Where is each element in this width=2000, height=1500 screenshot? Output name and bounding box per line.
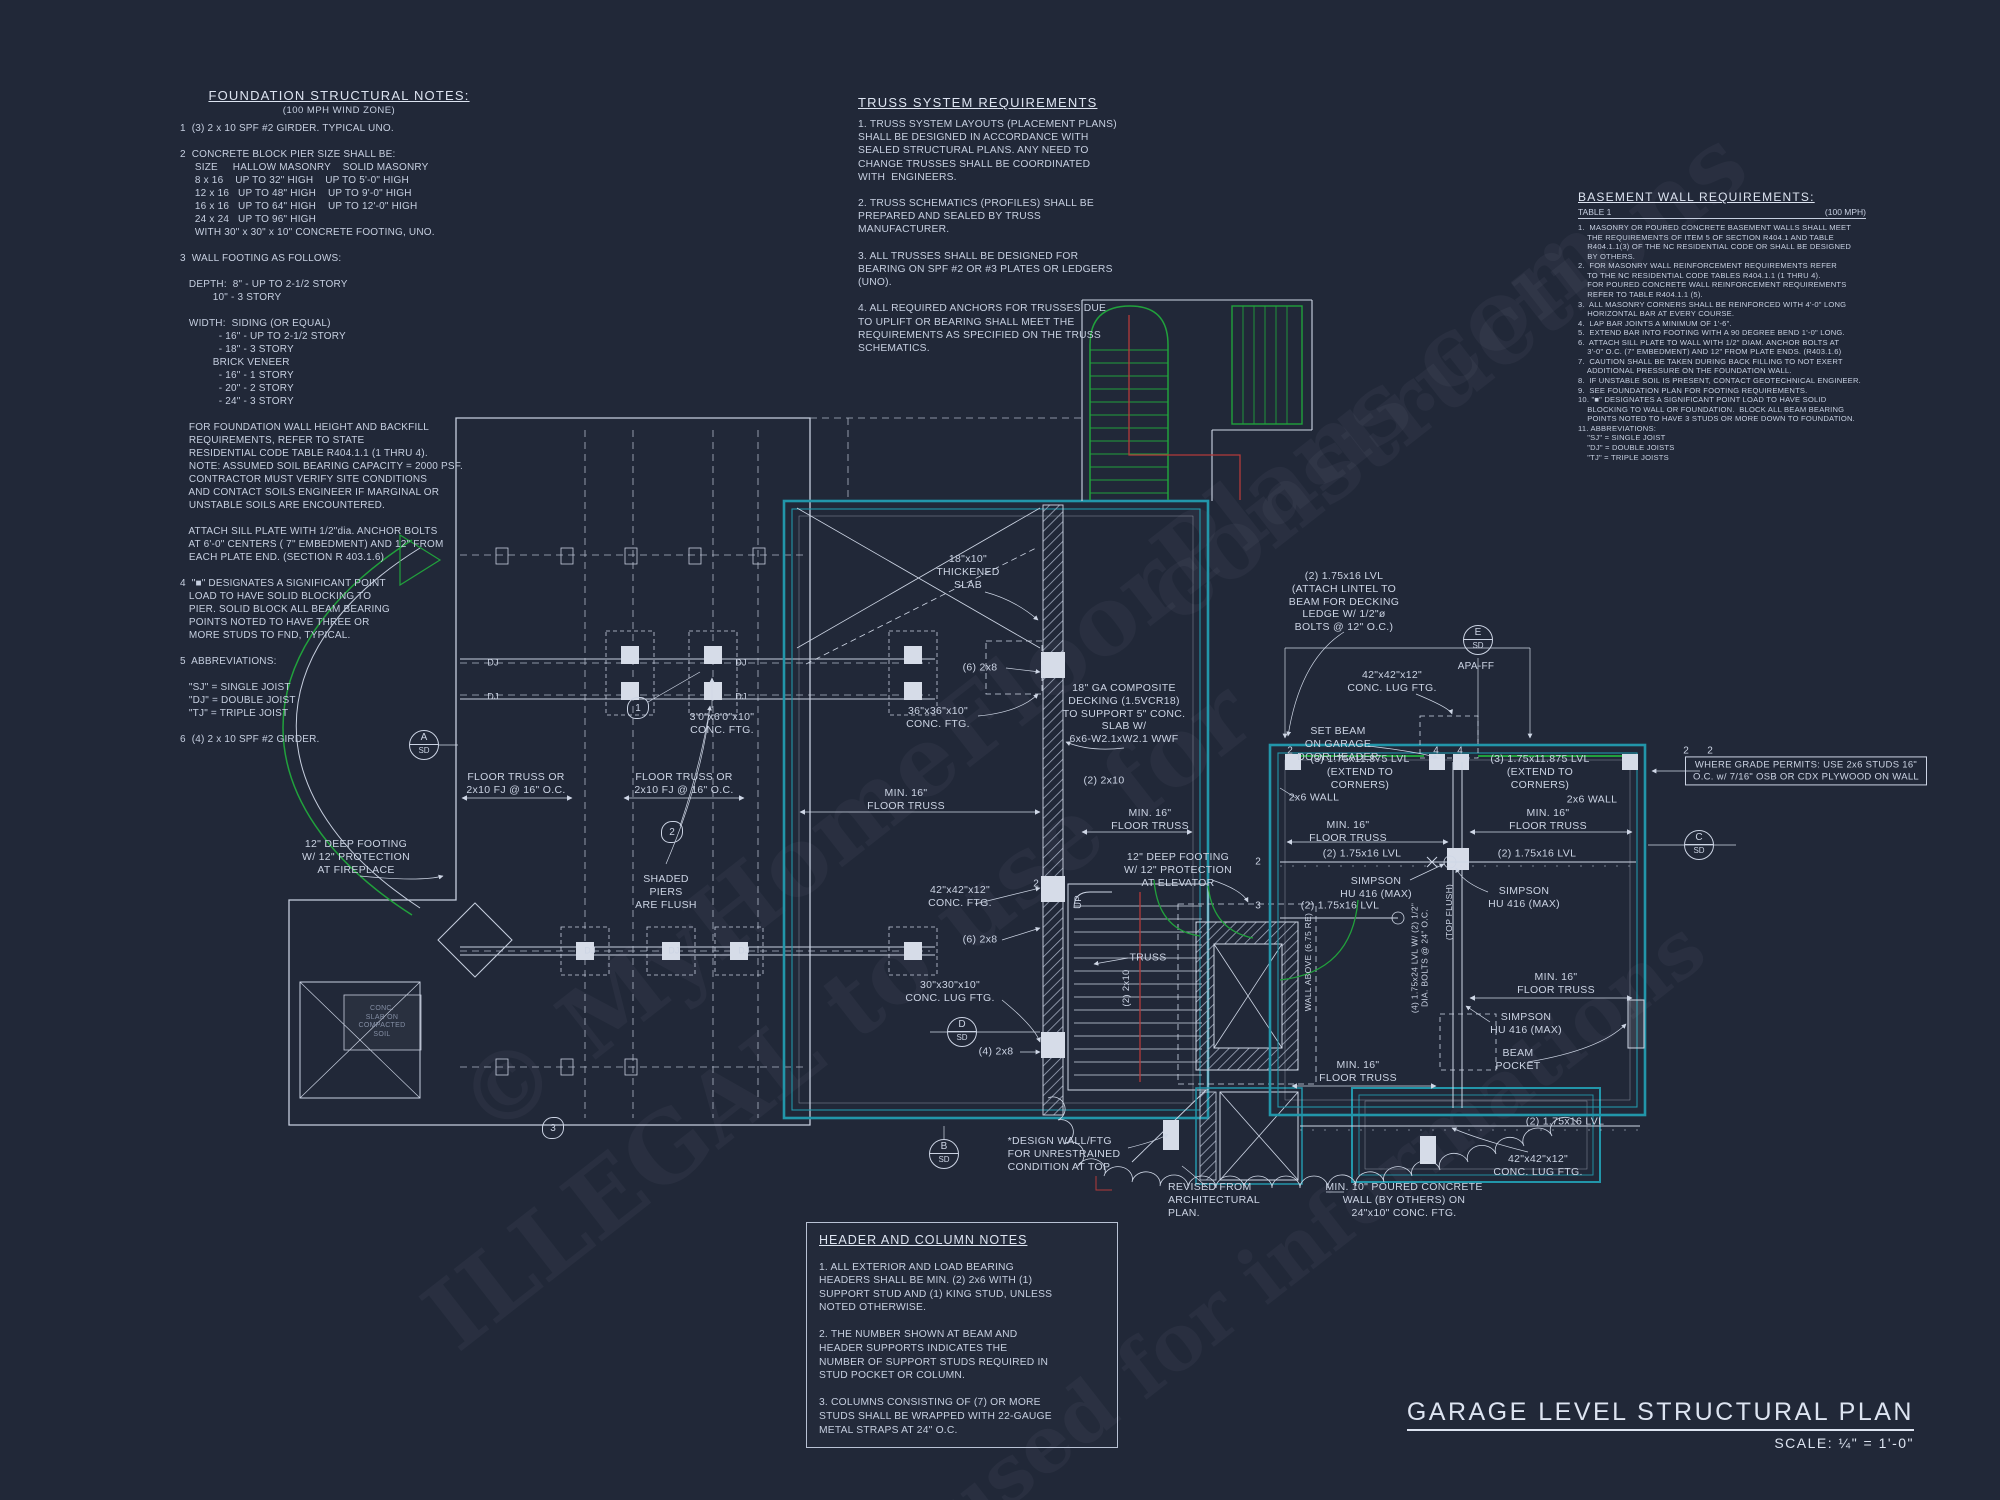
note-line: - 16" - UP TO 2-1/2 STORY bbox=[180, 330, 498, 343]
plan-label: (4) 1.75x24 LVL W/ (2) 1/2"DIA. BOLTS @ … bbox=[1410, 903, 1431, 1013]
plan-label: (3) 1.75x11.875 LVL(EXTEND TOCORNERS) bbox=[1490, 753, 1589, 791]
plan-label: 2x6 WALL bbox=[1567, 794, 1617, 807]
plan-label: FLOOR TRUSS OR2x10 FJ @ 16" O.C. bbox=[466, 771, 565, 797]
keynote-hex-marker: 2 bbox=[661, 821, 683, 843]
note-line: "TJ" = TRIPLE JOIST bbox=[180, 707, 498, 720]
note-line: UNSTABLE SOILS ARE ENCOUNTERED. bbox=[180, 499, 498, 512]
note-line: 24 x 24 UP TO 96" HIGH bbox=[180, 213, 498, 226]
note-line: PIER. SOLID BLOCK ALL BEAM BEARING bbox=[180, 603, 498, 616]
section-marker-b: BSD bbox=[929, 1139, 959, 1169]
note-line: HORIZONTAL BAR AT EVERY COURSE. bbox=[1578, 309, 1866, 319]
plan-label: CONC.SLAB ONCOMPACTEDSOIL bbox=[359, 1005, 406, 1039]
note-line: 10" - 3 STORY bbox=[180, 291, 498, 304]
note-line: FOR FOUNDATION WALL HEIGHT AND BACKFILL bbox=[180, 421, 498, 434]
note-line: MANUFACTURER. bbox=[858, 223, 1158, 236]
note-line: 2 CONCRETE BLOCK PIER SIZE SHALL BE: bbox=[180, 148, 498, 161]
notes-heading: HEADER AND COLUMN NOTES bbox=[819, 1233, 1105, 1247]
note-line bbox=[180, 408, 498, 421]
note-line: ATTACH SILL PLATE WITH 1/2"dia. ANCHOR B… bbox=[180, 525, 498, 538]
plan-label: (2) 1.75x16 LVL bbox=[1301, 900, 1379, 913]
plan-label: 18"x10"THICKENEDSLAB bbox=[936, 553, 999, 591]
plan-label: 42"x42"x12"CONC. LUG FTG. bbox=[1347, 669, 1436, 695]
wind-speed: (100 MPH) bbox=[1825, 207, 1866, 217]
note-line: R404.1.1(3) OF THE NC RESIDENTIAL CODE O… bbox=[1578, 242, 1866, 252]
note-line: HEADERS SHALL BE MIN. (2) 2x6 WITH (1) bbox=[819, 1274, 1105, 1288]
plan-label: WALL ABOVE (6.75 RE) bbox=[1303, 913, 1313, 1011]
plan-label: (2) 2x10 bbox=[1121, 969, 1133, 1006]
note-line: - 20" - 2 STORY bbox=[180, 382, 498, 395]
note-line: 7. CAUTION SHALL BE TAKEN DURING BACK FI… bbox=[1578, 357, 1866, 367]
plan-label: (TOP FLUSH) bbox=[1444, 884, 1454, 940]
note-line: MORE STUDS TO FND, TYPICAL. bbox=[180, 629, 498, 642]
plan-label: MIN. 16"FLOOR TRUSS bbox=[1319, 1059, 1397, 1085]
note-line: DEPTH: 8" - UP TO 2-1/2 STORY bbox=[180, 278, 498, 291]
plan-label: SIMPSONHU 416 (MAX) bbox=[1490, 1011, 1562, 1037]
note-line: 5. EXTEND BAR INTO FOOTING WITH A 90 DEG… bbox=[1578, 328, 1866, 338]
note-line: POINTS NOTED TO HAVE 3 STUDS OR MORE DOW… bbox=[1578, 414, 1866, 424]
plan-label: DJ bbox=[735, 658, 747, 669]
table-label: TABLE 1 bbox=[1578, 207, 1611, 217]
stud-count-number: 2 bbox=[1255, 857, 1261, 868]
stud-count-number: 2 bbox=[1683, 746, 1689, 757]
note-line: "TJ" = TRIPLE JOISTS bbox=[1578, 453, 1866, 463]
plan-label: DJ bbox=[668, 946, 680, 957]
plan-label: 42"x42"x12"CONC. LUG FTG. bbox=[1493, 1153, 1582, 1179]
note-line: 1 (3) 2 x 10 SPF #2 GIRDER. TYPICAL UNO. bbox=[180, 122, 498, 135]
note-line: HEADER SUPPORTS INDICATES THE bbox=[819, 1342, 1105, 1356]
note-line: 6 (4) 2 x 10 SPF #2 GIRDER. bbox=[180, 733, 498, 746]
plan-label: REVISED FROMARCHITECTURALPLAN. bbox=[1168, 1181, 1260, 1219]
note-line: THE REQUIREMENTS OF ITEM 5 OF SECTION R4… bbox=[1578, 233, 1866, 243]
plan-label: DJ bbox=[487, 658, 499, 669]
note-line: 1. MASONRY OR POURED CONCRETE BASEMENT W… bbox=[1578, 223, 1866, 233]
plan-label: SIMPSONHU 416 (MAX) bbox=[1340, 875, 1412, 901]
notes-body: 1. TRUSS SYSTEM LAYOUTS (PLACEMENT PLANS… bbox=[858, 118, 1158, 355]
plan-label: 3'0"x6'0"x10"CONC. FTG. bbox=[690, 711, 755, 737]
plan-label: MIN. 16"FLOOR TRUSS bbox=[867, 787, 945, 813]
plan-label: DJ bbox=[584, 946, 596, 957]
plan-label: (6) 2x8 bbox=[963, 934, 998, 947]
elevator-shaft bbox=[1154, 880, 1316, 1084]
plan-label: (2) 1.75x16 LVL(ATTACH LINTEL TOBEAM FOR… bbox=[1289, 570, 1399, 634]
plan-label: DJ bbox=[738, 946, 750, 957]
stud-count-number: 3 bbox=[1255, 901, 1261, 912]
note-line: "SJ" = SINGLE JOIST bbox=[180, 681, 498, 694]
note-line bbox=[858, 237, 1158, 250]
plan-label: MIN. 16"FLOOR TRUSS bbox=[1509, 807, 1587, 833]
note-line: 3 WALL FOOTING AS FOLLOWS: bbox=[180, 252, 498, 265]
note-line: WITH 30" x 30" x 10" CONCRETE FOOTING, U… bbox=[180, 226, 498, 239]
plan-label: MIN. 16"FLOOR TRUSS bbox=[1111, 807, 1189, 833]
note-line bbox=[180, 265, 498, 278]
note-line: 2. TRUSS SCHEMATICS (PROFILES) SHALL BE bbox=[858, 197, 1158, 210]
notes-subheading: (100 MPH WIND ZONE) bbox=[180, 105, 498, 116]
stud-count-number: 2 bbox=[1707, 746, 1713, 757]
note-line: SUPPORT STUD AND (1) KING STUD, UNLESS bbox=[819, 1288, 1105, 1302]
note-line: BLOCKING TO WALL OR FOUNDATION. BLOCK AL… bbox=[1578, 405, 1866, 415]
note-line: 10. "■" DESIGNATES A SIGNIFICANT POINT L… bbox=[1578, 395, 1866, 405]
note-line bbox=[180, 135, 498, 148]
note-line: NOTE: ASSUMED SOIL BEARING CAPACITY = 20… bbox=[180, 460, 498, 473]
note-line bbox=[819, 1247, 1105, 1261]
note-line bbox=[819, 1315, 1105, 1329]
note-line: LOAD TO HAVE SOLID BLOCKING TO bbox=[180, 590, 498, 603]
title-block: GARAGE LEVEL STRUCTURAL PLAN SCALE: ¼" =… bbox=[1407, 1398, 1914, 1451]
note-line: EACH PLATE END. (SECTION R 403.1.6) bbox=[180, 551, 498, 564]
note-line: SEALED STRUCTURAL PLANS. ANY NEED TO bbox=[858, 144, 1158, 157]
note-line: 6. ATTACH SILL PLATE TO WALL WITH 1/2" D… bbox=[1578, 338, 1866, 348]
note-line: 1. TRUSS SYSTEM LAYOUTS (PLACEMENT PLANS… bbox=[858, 118, 1158, 131]
section-marker-a: ASD bbox=[409, 730, 439, 760]
plan-label: (2) 1.75x16 LVL bbox=[1498, 848, 1576, 861]
note-line bbox=[180, 642, 498, 655]
note-line: 3. ALL MASONRY CORNERS SHALL BE REINFORC… bbox=[1578, 300, 1866, 310]
note-line bbox=[180, 239, 498, 252]
note-line: 16 x 16 UP TO 64" HIGH UP TO 12'-0" HIGH bbox=[180, 200, 498, 213]
blueprint-canvas: © MyHomeFloorPlans.comILLEGAL to use for… bbox=[0, 0, 2000, 1500]
note-line: (UNO). bbox=[858, 276, 1158, 289]
note-line bbox=[180, 512, 498, 525]
plan-label: DJ bbox=[487, 692, 499, 703]
note-line: CHANGE TRUSSES SHALL BE COORDINATED bbox=[858, 158, 1158, 171]
plan-label: 18" GA COMPOSITEDECKING (1.5VCR18)TO SUP… bbox=[1063, 682, 1186, 746]
note-line: "DJ" = DOUBLE JOIST bbox=[180, 694, 498, 707]
note-line: PREPARED AND SEALED BY TRUSS bbox=[858, 210, 1158, 223]
note-line: CONTRACTOR MUST VERIFY SITE CONDITIONS bbox=[180, 473, 498, 486]
plan-label: SHADEDPIERSARE FLUSH bbox=[635, 873, 697, 911]
note-line: POINTS NOTED TO HAVE THREE OR bbox=[180, 616, 498, 629]
page-title: GARAGE LEVEL STRUCTURAL PLAN bbox=[1407, 1398, 1914, 1431]
right-garage bbox=[1270, 648, 1645, 1130]
note-line: - 24" - 3 STORY bbox=[180, 395, 498, 408]
note-line: TO THE NC RESIDENTIAL CODE TABLES R404.1… bbox=[1578, 271, 1866, 281]
plan-label: (2) 1.75x16 LVL bbox=[1323, 848, 1401, 861]
note-line: 4 "■" DESIGNATES A SIGNIFICANT POINT bbox=[180, 577, 498, 590]
note-line bbox=[858, 184, 1158, 197]
note-line bbox=[180, 668, 498, 681]
note-line: - 18" - 3 STORY bbox=[180, 343, 498, 356]
note-line: REQUIREMENTS, REFER TO STATE bbox=[180, 434, 498, 447]
section-marker-c: CSD bbox=[1684, 830, 1714, 860]
note-line: 1. ALL EXTERIOR AND LOAD BEARING bbox=[819, 1261, 1105, 1275]
note-line: REQUIREMENTS AS SPECIFIED ON THE TRUSS bbox=[858, 329, 1158, 342]
foundation-structural-notes: FOUNDATION STRUCTURAL NOTES: (100 MPH WI… bbox=[180, 88, 498, 746]
drawing-scale: SCALE: ¼" = 1'-0" bbox=[1407, 1435, 1914, 1451]
note-line: 4. LAP BAR JOINTS A MINIMUM OF 1'-6". bbox=[1578, 319, 1866, 329]
plan-label: WHERE GRADE PERMITS: USE 2x6 STUDS 16"O.… bbox=[1685, 756, 1927, 785]
note-line: 12 x 16 UP TO 48" HIGH UP TO 9'-0" HIGH bbox=[180, 187, 498, 200]
note-line bbox=[180, 564, 498, 577]
notes-heading: FOUNDATION STRUCTURAL NOTES: bbox=[180, 88, 498, 103]
plan-label: FLOOR TRUSS OR2x10 FJ @ 16" O.C. bbox=[634, 771, 733, 797]
section-marker-e: ESD bbox=[1463, 625, 1493, 655]
plan-label: MIN. 10" POURED CONCRETEWALL (BY OTHERS)… bbox=[1325, 1181, 1482, 1219]
truss-system-requirements: TRUSS SYSTEM REQUIREMENTS 1. TRUSS SYSTE… bbox=[858, 95, 1158, 355]
stud-count-number: 4 bbox=[1457, 746, 1463, 757]
plan-label: DJ bbox=[735, 692, 747, 703]
table-row-label: TABLE 1 (100 MPH) bbox=[1578, 207, 1866, 219]
note-line: BEARING ON SPF #2 OR #3 PLATES OR LEDGER… bbox=[858, 263, 1158, 276]
note-line: NOTED OTHERWISE. bbox=[819, 1301, 1105, 1315]
notes-body: 1 (3) 2 x 10 SPF #2 GIRDER. TYPICAL UNO.… bbox=[180, 122, 498, 746]
note-line bbox=[858, 289, 1158, 302]
plan-label: (6) 2x8 bbox=[963, 662, 998, 675]
note-line: STUD POCKET OR COLUMN. bbox=[819, 1369, 1105, 1383]
note-line: AT 6'-0" CENTERS ( 7" EMBEDMENT) AND 12"… bbox=[180, 538, 498, 551]
plan-label: 12" DEEP FOOTINGW/ 12" PROTECTIONAT ELEV… bbox=[1124, 851, 1232, 889]
note-line bbox=[819, 1383, 1105, 1397]
note-line: METAL STRAPS AT 24" O.C. bbox=[819, 1424, 1105, 1438]
keynote-hex-marker: 1 bbox=[627, 697, 649, 719]
plan-label: (3) 1.75x11.875 LVL(EXTEND TOCORNERS) bbox=[1310, 753, 1409, 791]
note-line: 2. FOR MASONRY WALL REINFORCEMENT REQUIR… bbox=[1578, 261, 1866, 271]
plan-label: (4) 2x8 bbox=[979, 1046, 1014, 1059]
note-line: 2. THE NUMBER SHOWN AT BEAM AND bbox=[819, 1328, 1105, 1342]
header-and-column-notes: HEADER AND COLUMN NOTES 1. ALL EXTERIOR … bbox=[806, 1222, 1118, 1448]
plan-label: MIN. 16"FLOOR TRUSS bbox=[1517, 971, 1595, 997]
note-line bbox=[180, 304, 498, 317]
notes-body: 1. MASONRY OR POURED CONCRETE BASEMENT W… bbox=[1578, 223, 1866, 462]
note-line: RESIDENTIAL CODE TABLE R404.1.1 (1 THRU … bbox=[180, 447, 498, 460]
notes-heading: BASEMENT WALL REQUIREMENTS: bbox=[1578, 190, 1866, 204]
note-line: WITH ENGINEERS. bbox=[858, 171, 1158, 184]
plan-label: 42"x42"x12"CONC. FTG. bbox=[928, 884, 992, 910]
plan-label: (2) 2x10 bbox=[1084, 775, 1125, 788]
stud-count-number: 4 bbox=[1433, 746, 1439, 757]
plan-label: UP bbox=[1073, 895, 1085, 909]
plan-label: 12" DEEP FOOTINGW/ 12" PROTECTIONAT FIRE… bbox=[302, 838, 410, 876]
notes-heading: TRUSS SYSTEM REQUIREMENTS bbox=[858, 95, 1158, 110]
stud-count-number: 2 bbox=[1287, 746, 1293, 757]
note-line: AND CONTACT SOILS ENGINEER IF MARGINAL O… bbox=[180, 486, 498, 499]
plan-label: 30"x30"x10"CONC. LUG FTG. bbox=[905, 979, 994, 1005]
note-line: 5 ABBREVIATIONS: bbox=[180, 655, 498, 668]
plan-label: 2x6 WALL bbox=[1289, 792, 1339, 805]
plan-label: *DESIGN WALL/FTGFOR UNRESTRAINEDCONDITIO… bbox=[1008, 1135, 1121, 1173]
plan-label: TRUSS bbox=[1129, 952, 1166, 965]
note-line: SIZE HALLOW MASONRY SOLID MASONRY bbox=[180, 161, 498, 174]
note-line: "DJ" = DOUBLE JOISTS bbox=[1578, 443, 1866, 453]
keynote-hex-marker: 3 bbox=[542, 1117, 564, 1139]
note-line: 8. IF UNSTABLE SOIL IS PRESENT, CONTACT … bbox=[1578, 376, 1866, 386]
note-line: 11. ABBREVIATIONS: bbox=[1578, 424, 1866, 434]
note-line: 3. COLUMNS CONSISTING OF (7) OR MORE bbox=[819, 1396, 1105, 1410]
note-line: ADDITIONAL PRESSURE ON THE FOUNDATION WA… bbox=[1578, 366, 1866, 376]
plan-label: SIMPSONHU 416 (MAX) bbox=[1488, 885, 1560, 911]
plan-label: 36"x36"x10"CONC. FTG. bbox=[906, 705, 970, 731]
note-line: "SJ" = SINGLE JOIST bbox=[1578, 433, 1866, 443]
basement-wall-requirements: BASEMENT WALL REQUIREMENTS: TABLE 1 (100… bbox=[1578, 190, 1866, 462]
note-line: SCHEMATICS. bbox=[858, 342, 1158, 355]
note-line: WIDTH: SIDING (OR EQUAL) bbox=[180, 317, 498, 330]
notes-body: 1. ALL EXTERIOR AND LOAD BEARINGHEADERS … bbox=[819, 1247, 1105, 1437]
note-line: TO UPLIFT OR BEARING SHALL MEET THE bbox=[858, 316, 1158, 329]
note-line bbox=[180, 720, 498, 733]
note-line: - 16" - 1 STORY bbox=[180, 369, 498, 382]
stud-count-number: 2 bbox=[1033, 879, 1039, 890]
note-line: 9. SEE FOUNDATION PLAN FOR FOOTING REQUI… bbox=[1578, 386, 1866, 396]
note-line: REFER TO TABLE R404.1.1 (5). bbox=[1578, 290, 1866, 300]
note-line: 4. ALL REQUIRED ANCHORS FOR TRUSSES DUE bbox=[858, 302, 1158, 315]
plan-label: APA-FF bbox=[1458, 661, 1495, 673]
note-line: 3'-0" O.C. (7" EMBEDMENT) AND 12" FROM P… bbox=[1578, 347, 1866, 357]
note-line: 8 x 16 UP TO 32" HIGH UP TO 5'-0" HIGH bbox=[180, 174, 498, 187]
note-line: STUDS SHALL BE WRAPPED WITH 22-GAUGE bbox=[819, 1410, 1105, 1424]
note-line: NUMBER OF SUPPORT STUDS REQUIRED IN bbox=[819, 1356, 1105, 1370]
plan-label: MIN. 16"FLOOR TRUSS bbox=[1309, 819, 1387, 845]
note-line: BRICK VENEER bbox=[180, 356, 498, 369]
plan-label: BEAMPOCKET bbox=[1496, 1047, 1541, 1073]
plan-label: (2) 1.75x16 LVL bbox=[1526, 1116, 1604, 1129]
note-line: 3. ALL TRUSSES SHALL BE DESIGNED FOR bbox=[858, 250, 1158, 263]
note-line: SHALL BE DESIGNED IN ACCORDANCE WITH bbox=[858, 131, 1158, 144]
note-line: BY OTHERS. bbox=[1578, 252, 1866, 262]
note-line: FOR POURED CONCRETE WALL REINFORCEMENT R… bbox=[1578, 280, 1866, 290]
section-marker-d: DSD bbox=[947, 1017, 977, 1047]
